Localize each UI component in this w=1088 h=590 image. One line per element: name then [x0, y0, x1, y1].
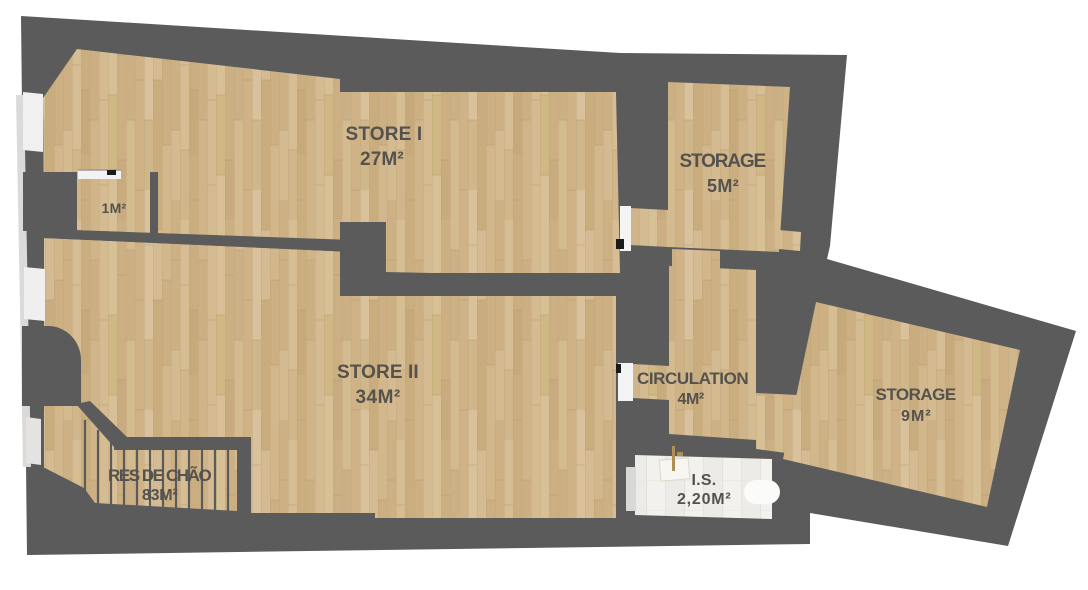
svg-text:1M²: 1M² [101, 200, 126, 216]
svg-text:9M²: 9M² [901, 408, 931, 425]
svg-text:STORAGE: STORAGE [680, 151, 767, 172]
svg-text:34M²: 34M² [356, 387, 401, 408]
svg-text:CIRCULATION: CIRCULATION [637, 369, 749, 388]
svg-text:RES DE CHÃO: RES DE CHÃO [108, 465, 212, 485]
svg-text:I.S.: I.S. [692, 472, 717, 489]
svg-text:83M²: 83M² [142, 487, 178, 504]
svg-text:STORE II: STORE II [337, 362, 419, 383]
svg-text:STORE I: STORE I [346, 124, 423, 145]
svg-text:27M²: 27M² [360, 149, 404, 170]
svg-text:5M²: 5M² [707, 176, 739, 196]
svg-text:4M²: 4M² [678, 391, 705, 408]
svg-text:STORAGE: STORAGE [876, 385, 957, 404]
svg-text:2,20M²: 2,20M² [677, 491, 731, 508]
